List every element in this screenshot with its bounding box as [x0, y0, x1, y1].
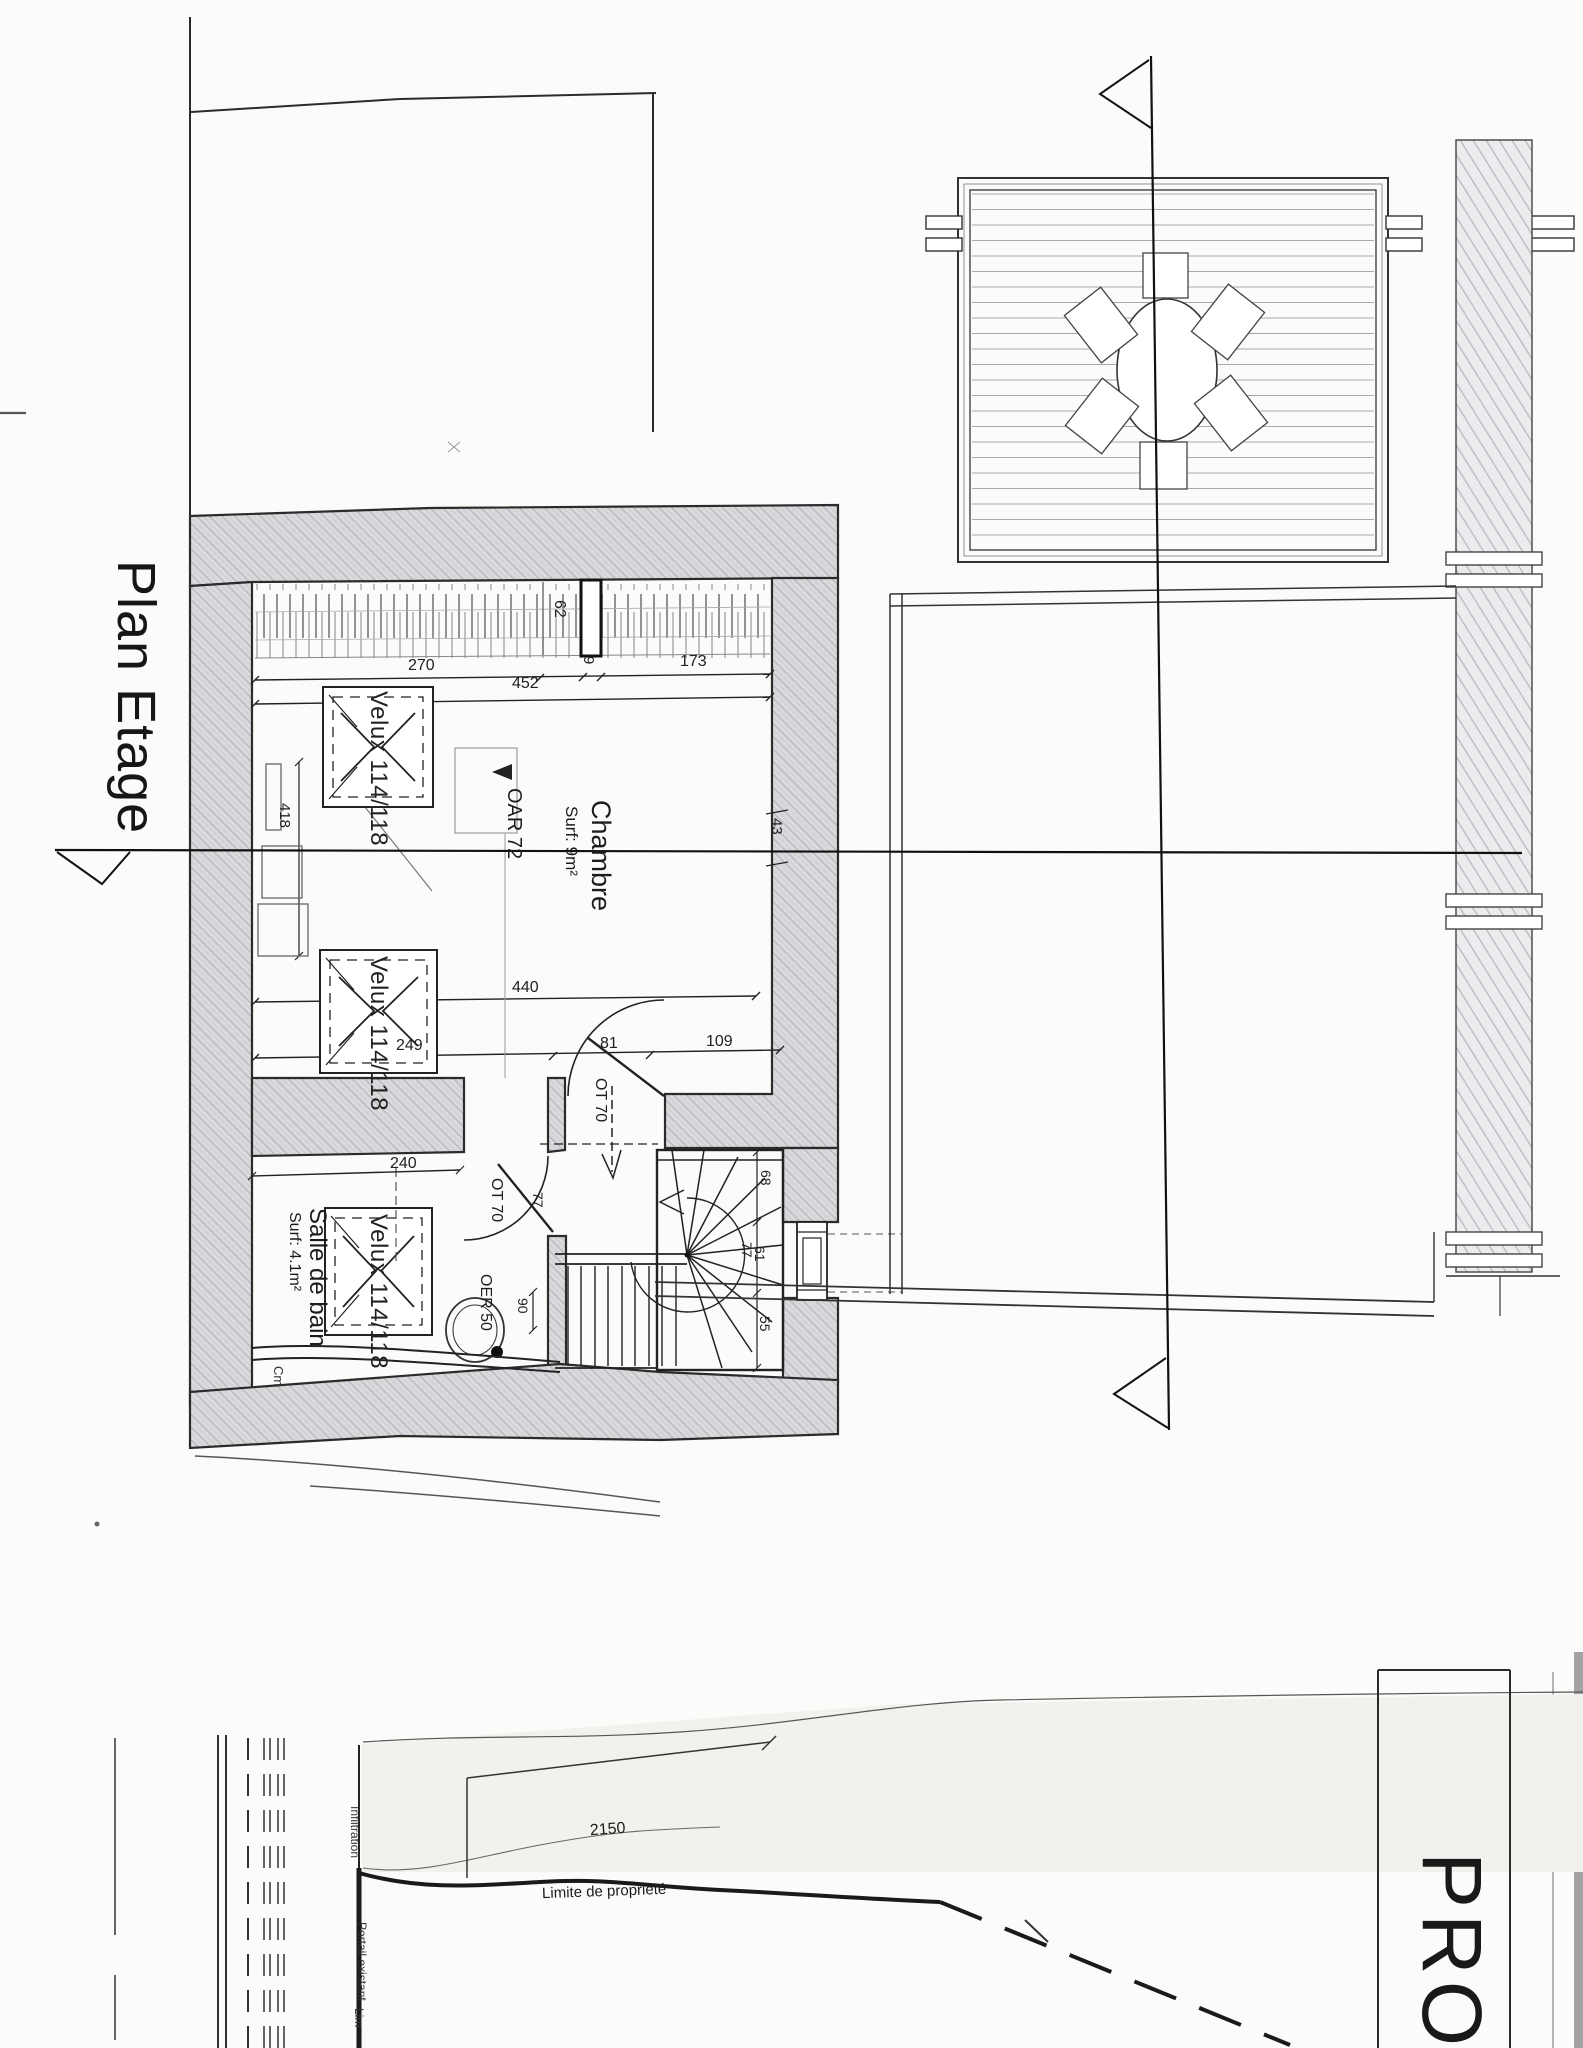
dim-173: 173	[680, 654, 707, 671]
cm-label: Cm	[271, 1366, 285, 1386]
velux-2-label: Velux 114/118	[366, 956, 391, 1111]
ground-lines	[195, 1456, 660, 1516]
limite-partial-label: Lim	[352, 2008, 365, 2027]
straight-treads	[568, 1266, 676, 1366]
dim-2150: 2150	[589, 1821, 626, 1840]
dim-90: 90	[515, 1298, 530, 1314]
velux-3-label: Velux 114/118	[366, 1214, 391, 1369]
chambre-name: Chambre	[587, 800, 615, 911]
project-title: PRO	[1408, 1852, 1496, 2048]
dim-440: 440	[512, 980, 539, 997]
dim-43: 43	[768, 818, 784, 835]
dim-240: 240	[390, 1156, 417, 1173]
salle-de-bain-name: Salle de bain	[305, 1208, 330, 1347]
door-chambre-label: OT 70	[591, 1078, 608, 1122]
oar-label: OAR 72	[503, 788, 524, 859]
stair-window	[797, 1222, 827, 1300]
door-bain-label: OT 70	[487, 1178, 504, 1222]
dim-61: 61	[752, 1246, 767, 1262]
dim-418: 418	[276, 803, 292, 828]
dim-68: 68	[758, 1170, 773, 1186]
dim-9: 9	[580, 656, 596, 664]
plan-title: Plan Etage	[107, 560, 164, 834]
dim-55: 55	[757, 1316, 772, 1332]
plan-linework	[0, 0, 1583, 2048]
dim-109: 109	[706, 1034, 733, 1051]
dim-452: 452	[512, 676, 539, 693]
dim-249: 249	[396, 1038, 423, 1055]
infiltration-label: Infiltration	[348, 1806, 361, 1858]
portail-label: Portail existant	[355, 1922, 368, 2001]
scanned-plan-page: Plan Etage Velux 114/118 Velux 114/118 V…	[0, 0, 1583, 2048]
chambre-surface: Surf: 9m²	[562, 806, 580, 876]
stairs	[555, 1148, 902, 1372]
salle-de-bain-surface: Surf: 4.1m²	[285, 1212, 302, 1291]
dim-270: 270	[408, 658, 435, 675]
dim-81: 81	[600, 1036, 618, 1053]
oer-label: OER 50	[476, 1274, 493, 1331]
site-plan	[115, 1692, 1583, 2048]
dim-62: 62	[550, 600, 567, 618]
velux-1-label: Velux 114/118	[366, 691, 391, 846]
dim-77-bain: 77	[530, 1192, 545, 1208]
